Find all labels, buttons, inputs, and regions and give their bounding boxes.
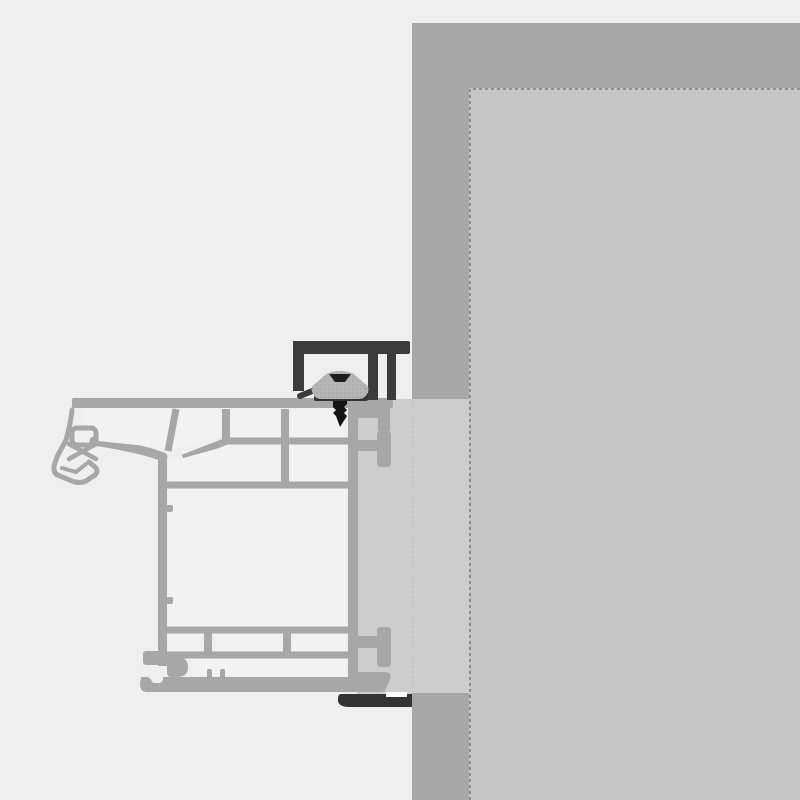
bracket-right-post xyxy=(387,354,396,400)
profile-chamber xyxy=(231,409,279,437)
profile-bottom-tooth xyxy=(207,669,212,679)
profile-bottom-tooth xyxy=(220,669,225,679)
profile-bottom-web-2 xyxy=(283,632,291,656)
bracket-left-leg xyxy=(293,341,304,391)
profile-chamber xyxy=(169,634,200,651)
wall-section xyxy=(412,23,800,800)
profile-anchor-fin-upper xyxy=(377,431,391,467)
profile-anchor-lip-leg xyxy=(378,414,390,432)
profile-main-chamber xyxy=(169,489,346,626)
profile-left-wall xyxy=(158,455,167,666)
section-drawing xyxy=(0,0,800,800)
profile-chamber xyxy=(192,659,346,676)
bracket-top-bar xyxy=(293,341,410,354)
profile-anchor-stem-upper xyxy=(355,440,380,451)
profile-wall-nub xyxy=(166,597,173,604)
sill-flashing xyxy=(338,692,412,707)
profile-anchor-fin-lower xyxy=(377,627,391,667)
profile-bottom-web-1 xyxy=(204,632,212,656)
profile-anchor-stem-lower xyxy=(355,636,380,648)
profile-wall-nub xyxy=(166,505,173,512)
bracket-mid-post xyxy=(368,354,378,400)
profile-foot-knob xyxy=(167,657,188,677)
technical-drawing-canvas xyxy=(0,0,800,800)
profile-chamber xyxy=(290,445,345,481)
profile-chamber xyxy=(294,634,346,651)
profile-chamber xyxy=(216,634,279,651)
wall-inner-layer xyxy=(469,88,800,800)
flashing-gap-strip xyxy=(386,692,407,697)
wall-outer-layer-lower xyxy=(412,693,469,800)
profile-foot-block xyxy=(143,651,167,665)
